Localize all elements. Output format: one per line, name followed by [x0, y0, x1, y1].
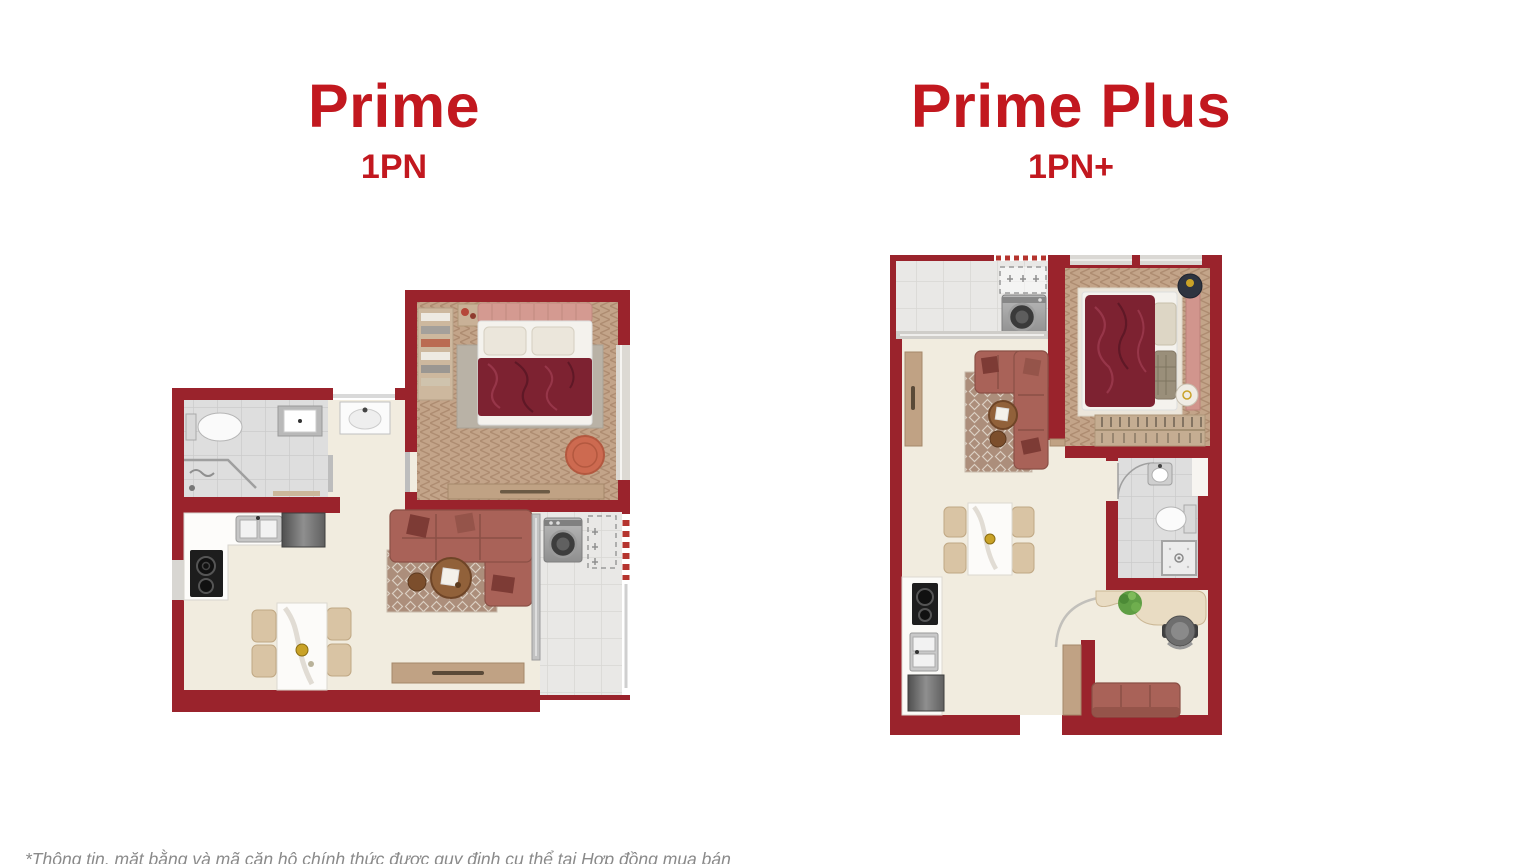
legal-footnote: *Thông tin, mặt bằng và mã căn hộ chính … [25, 849, 731, 864]
bed [478, 303, 592, 425]
shower-icon [1162, 541, 1196, 575]
washing-machine-icon [544, 518, 582, 562]
table-centerpiece [296, 644, 308, 656]
kitchen-sink-icon [910, 633, 938, 671]
floorplan-prime-plus [890, 255, 1222, 735]
nightstand-light [1176, 384, 1198, 406]
wardrobe [418, 308, 453, 400]
side-stool [408, 573, 426, 591]
plan-prime-subtitle: 1PN [164, 150, 624, 184]
bathroom-sink-icon [1148, 463, 1172, 485]
pillow-plaid [1154, 351, 1176, 399]
bathroom-door-opening [1106, 461, 1118, 501]
bedroom-bench [448, 484, 604, 499]
bedside-table [458, 304, 480, 326]
closet-niche [1192, 458, 1208, 496]
fridge-icon [282, 513, 325, 547]
study-sofa [1092, 683, 1180, 717]
tv-console [392, 663, 524, 683]
ac-unit-dashed [1000, 267, 1046, 293]
plan-prime-plus-header: Prime Plus 1PN+ [886, 76, 1256, 184]
toilet-icon [186, 413, 242, 441]
hall-washbasin-icon [340, 402, 390, 434]
table-centerpiece [985, 534, 995, 544]
plan-prime-title: Prime [164, 76, 624, 137]
fridge-icon [908, 675, 944, 711]
cooktop-icon [912, 583, 938, 625]
headboard [478, 303, 592, 323]
coffee-table-icon [431, 558, 471, 598]
pillow [1154, 303, 1176, 345]
wardrobe [1095, 415, 1205, 446]
bathroom-sink-icon [278, 406, 322, 436]
bedroom-door-frame [1050, 439, 1065, 446]
kitchen-window [172, 560, 184, 600]
bathroom-bottom-wall [172, 497, 340, 513]
floorplan-slide: Prime 1PN Prime Plus 1PN+ [0, 0, 1536, 864]
kitchen-sink-icon [236, 516, 282, 542]
cooktop-icon [190, 550, 223, 597]
tv-console [905, 352, 922, 446]
floorplan-prime [170, 288, 630, 712]
bedroom-window [616, 345, 630, 480]
plan-prime-plus-title: Prime Plus [886, 76, 1256, 137]
washing-machine-icon [1002, 295, 1046, 335]
bedroom [1078, 274, 1205, 446]
pouf [566, 436, 604, 474]
plan-prime-header: Prime 1PN [164, 76, 624, 184]
plant-icon [1118, 591, 1142, 615]
toilet-icon [1156, 505, 1196, 533]
kitchen [902, 577, 944, 715]
entrance-opening [1020, 715, 1062, 735]
plan-prime-plus-subtitle: 1PN+ [886, 150, 1256, 184]
pillow [484, 327, 526, 355]
pillow [532, 327, 574, 355]
entry-door [1063, 645, 1081, 715]
bath-mat [273, 491, 320, 496]
